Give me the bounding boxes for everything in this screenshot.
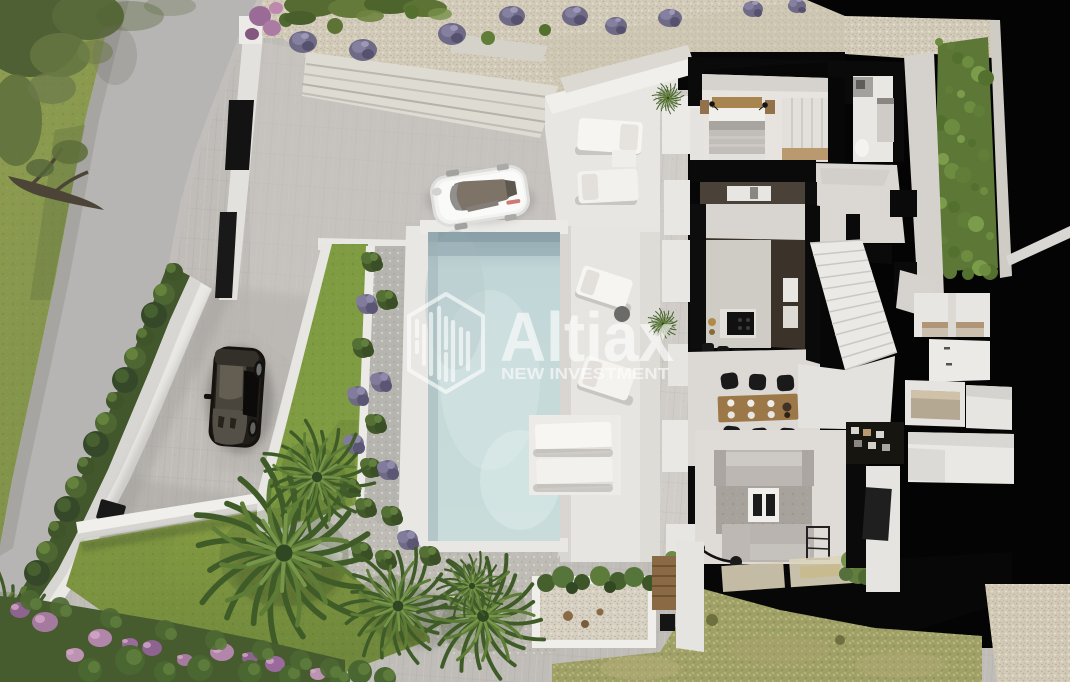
svg-text:NEW INVESTMENT: NEW INVESTMENT: [501, 366, 669, 383]
svg-text:Altiax: Altiax: [500, 298, 674, 376]
